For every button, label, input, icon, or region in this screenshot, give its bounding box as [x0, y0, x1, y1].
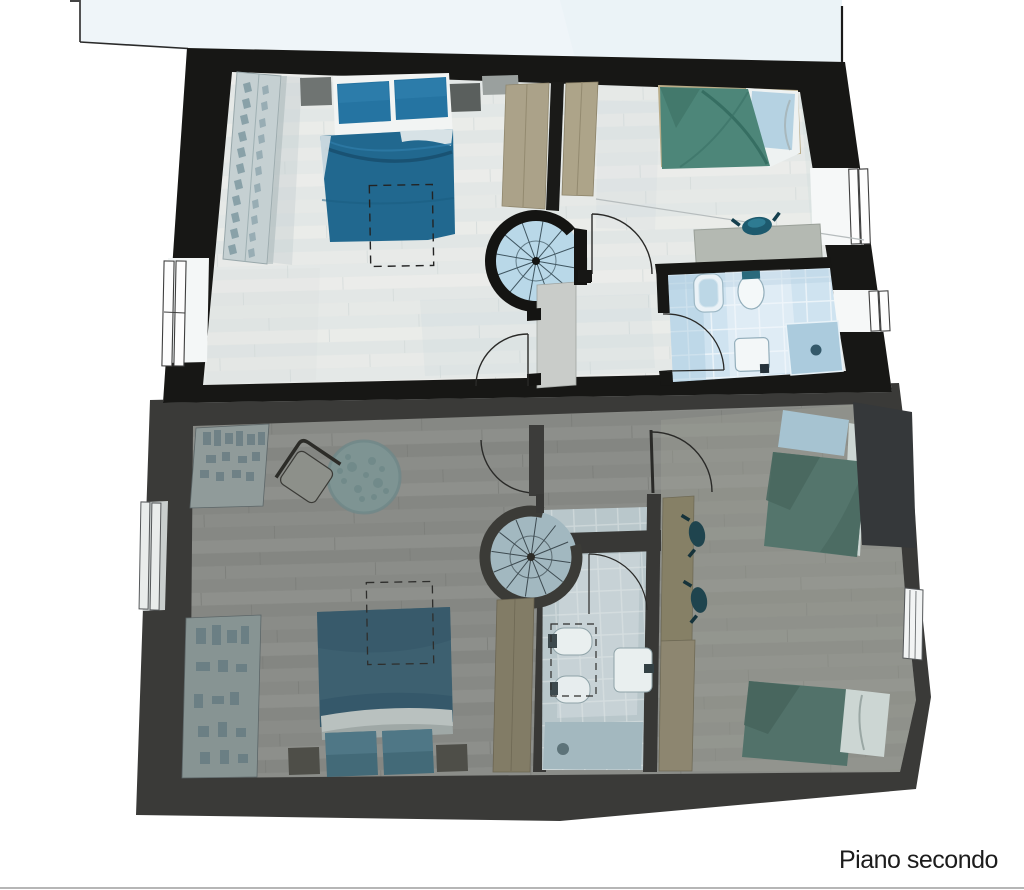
svg-text:Piano secondo: Piano secondo — [839, 846, 998, 874]
